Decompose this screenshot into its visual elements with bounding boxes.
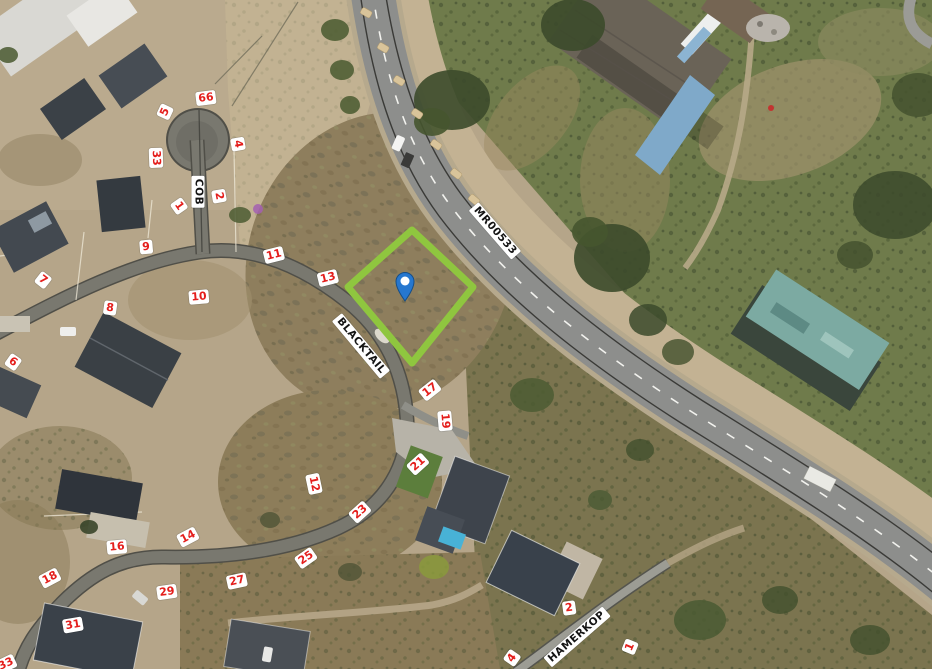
flowering-bush: [253, 204, 263, 214]
aerial-map-view[interactable]: COBBLACKTAILMR00533HAMERKOP6654332197810…: [0, 0, 932, 669]
red-object: [768, 105, 774, 111]
aerial-imagery: [0, 0, 932, 669]
yellow-bush: [419, 555, 449, 579]
tree-cluster: [541, 0, 605, 51]
white-car: [60, 327, 76, 336]
house-roof: [96, 176, 145, 232]
driveway: [0, 316, 30, 332]
junk-pile: [746, 14, 790, 42]
bushes: [510, 378, 554, 412]
pin-dot: [401, 277, 410, 286]
